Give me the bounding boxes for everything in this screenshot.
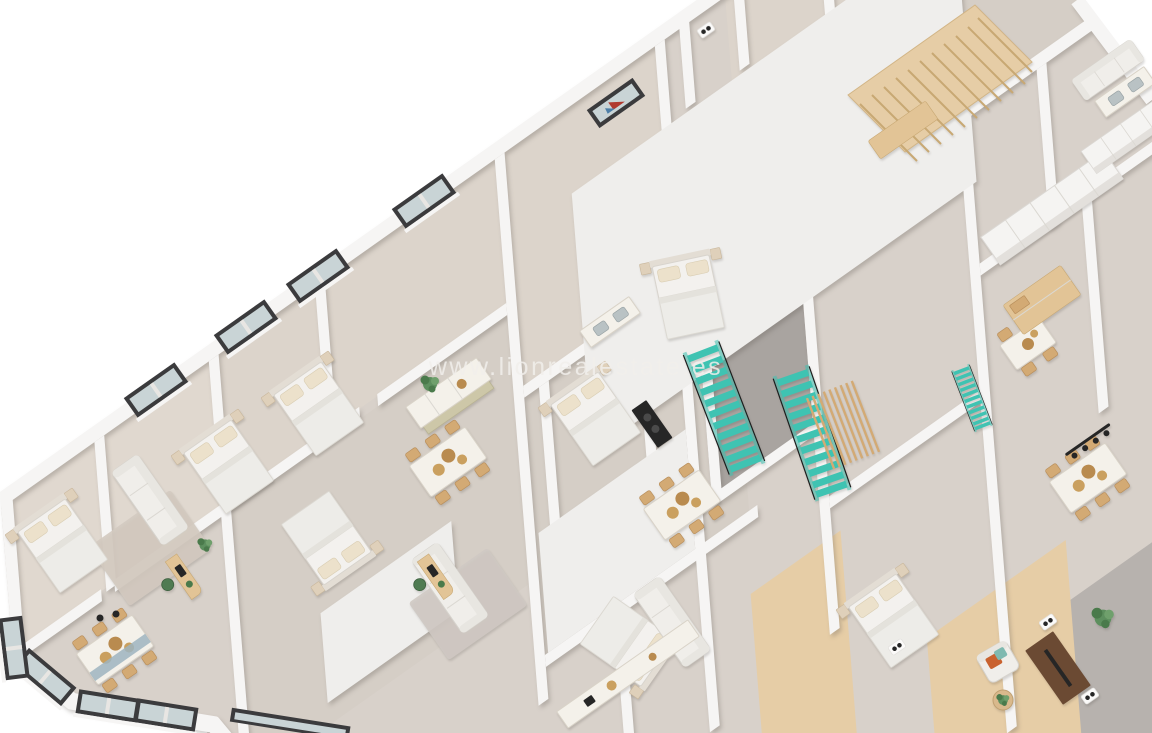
watermark-text: www.lionrealestate.es bbox=[428, 353, 723, 381]
floorplan-render: www.lionrealestate.es bbox=[0, 0, 1152, 733]
floorplan-svg: www.lionrealestate.es bbox=[0, 0, 1152, 733]
